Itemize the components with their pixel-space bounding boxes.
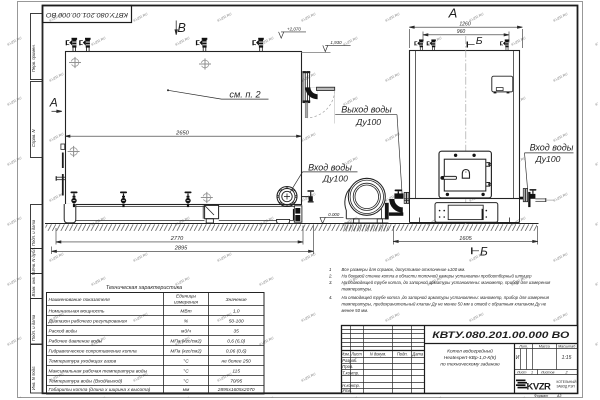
svg-text:не более 250: не более 250 [222, 358, 252, 364]
svg-text:Подп.: Подп. [397, 351, 408, 356]
svg-text:Ду100: Ду100 [535, 154, 561, 164]
svg-text:50-100: 50-100 [229, 318, 244, 324]
svg-text:Номинальная мощность: Номинальная мощность [49, 308, 106, 314]
svg-text:Масса: Масса [539, 344, 550, 348]
svg-text:Б: Б [480, 245, 488, 259]
svg-text:+2,070: +2,070 [287, 27, 301, 32]
svg-text:Перв. примен.: Перв. примен. [31, 44, 36, 72]
svg-text:Рабочее давление воды: Рабочее давление воды [49, 338, 103, 344]
svg-text:%: % [184, 318, 189, 324]
svg-text:Ду100: Ду100 [355, 117, 381, 127]
svg-text:Подп. и дата: Подп. и дата [31, 219, 36, 246]
svg-text:А3: А3 [556, 394, 561, 398]
svg-text:измерения: измерения [174, 301, 198, 306]
svg-text:Котел водогрейный: Котел водогрейный [447, 347, 493, 354]
svg-text:Изм.: Изм. [341, 351, 350, 356]
svg-text:мм: мм [183, 388, 190, 393]
svg-text:Разраб.: Разраб. [342, 358, 357, 363]
svg-text:Вход воды: Вход воды [530, 142, 574, 152]
svg-text:0.000: 0.000 [328, 212, 340, 217]
svg-text:Справ. N: Справ. N [31, 129, 36, 147]
svg-text:Значение: Значение [226, 297, 247, 303]
svg-text:1605: 1605 [459, 236, 472, 242]
svg-text:Листов: Листов [540, 371, 555, 375]
svg-text:Наименование показателя: Наименование показателя [49, 297, 111, 303]
svg-text:А: А [448, 6, 458, 21]
svg-text:Единицы: Единицы [176, 294, 197, 300]
svg-text:Техническая характеристика: Техническая характеристика [106, 285, 182, 291]
svg-text:Вход воды: Вход воды [308, 163, 352, 173]
svg-text:115: 115 [232, 368, 240, 374]
svg-text:2895: 2895 [174, 246, 188, 252]
svg-text:Ду100: Ду100 [322, 173, 348, 183]
svg-text:ЗАВОД РЭП: ЗАВОД РЭП [557, 385, 576, 389]
svg-text:2: 2 [565, 371, 568, 375]
svg-text:МВт: МВт [180, 308, 191, 314]
svg-text:КОТЕЛЬНЫЙ: КОТЕЛЬНЫЙ [557, 380, 578, 384]
svg-text:м3/ч: м3/ч [181, 328, 191, 334]
svg-text:Инв. N дубл.: Инв. N дубл. [31, 247, 36, 271]
svg-text:На боковой стенке котла в обла: На боковой стенке котла в области топочн… [342, 274, 533, 279]
svg-text:Лист: Лист [516, 371, 527, 375]
svg-text:°С: °С [183, 358, 189, 364]
svg-text:Лист: Лист [350, 351, 362, 356]
svg-text:Взам. инв. N: Взам. инв. N [31, 271, 36, 296]
svg-text:Все размеры для справок, допус: Все размеры для справок, допустимое откл… [342, 267, 466, 272]
svg-text:Габариты котла (длина х ширина: Габариты котла (длина х ширина х высота) [49, 387, 151, 393]
svg-text:Формат: Формат [534, 394, 548, 398]
svg-text:1,0: 1,0 [233, 308, 240, 314]
svg-text:Гидравлическое сопротивление к: Гидравлическое сопротивление котла [49, 348, 137, 354]
svg-text:На отводящей трубе котла ,до з: На отводящей трубе котла ,до запорной ар… [342, 295, 550, 300]
svg-text:И: И [516, 355, 520, 361]
svg-text:0,06 (0,6): 0,06 (0,6) [226, 348, 247, 354]
svg-text:1:15: 1:15 [562, 355, 572, 361]
svg-text:по техническому заданию: по техническому заданию [440, 361, 500, 367]
svg-text:Лит.: Лит. [518, 344, 528, 348]
svg-text:Максимальная рабочая температу: Максимальная рабочая температура воды [49, 368, 148, 374]
svg-text:N докум.: N докум. [370, 351, 387, 356]
svg-text:Т.контр.: Т.контр. [342, 370, 359, 375]
svg-text:Подп. и дата: Подп. и дата [31, 314, 36, 341]
svg-text:Утв.: Утв. [342, 388, 352, 393]
svg-text:Расход воды: Расход воды [49, 328, 78, 334]
svg-text:Диапазон рабочего регулировани: Диапазон рабочего регулирования [48, 318, 128, 324]
svg-text:2.: 2. [328, 274, 333, 279]
svg-text:0,6 (6,0): 0,6 (6,0) [227, 338, 245, 344]
svg-text:Б: Б [476, 35, 483, 47]
svg-text:35: 35 [234, 328, 240, 334]
svg-text:температуры, предохранительный: температуры, предохранительный клапан Ду… [342, 301, 547, 306]
svg-text:Инв. N подл.: Инв. N подл. [31, 366, 36, 390]
svg-text:На подводящей трубе котла, д: На подводящей трубе котла, до запорной а… [342, 280, 551, 285]
svg-text:Выход воды: Выход воды [341, 105, 392, 115]
svg-text:МПа (кгс/см2): МПа (кгс/см2) [170, 338, 202, 344]
svg-text:°С: °С [183, 378, 189, 384]
svg-text:В: В [178, 21, 186, 35]
svg-text:1260: 1260 [459, 22, 470, 28]
svg-text:Температура уходящих газов: Температура уходящих газов [49, 358, 117, 364]
svg-text:Масштаб: Масштаб [558, 344, 576, 348]
svg-text:2770: 2770 [170, 236, 184, 242]
svg-text:Heatexpert-КВр-1,0-К(К): Heatexpert-КВр-1,0-К(К) [444, 355, 497, 361]
svg-text:KVZR: KVZR [527, 381, 552, 392]
svg-text:70/95: 70/95 [230, 378, 242, 384]
svg-text:КВТУ.080.201.00.000 ВО: КВТУ.080.201.00.000 ВО [432, 330, 570, 341]
svg-text:МПа (кгс/см2): МПа (кгс/см2) [170, 348, 202, 354]
svg-text:А: А [49, 95, 58, 109]
svg-text:см. п. 2: см. п. 2 [229, 89, 260, 99]
svg-text:960: 960 [457, 29, 466, 35]
svg-text:КВТУ.080.201.00.000 ВО: КВТУ.080.201.00.000 ВО [46, 11, 128, 18]
svg-text:1: 1 [531, 371, 533, 375]
svg-text:3.: 3. [329, 280, 333, 285]
svg-text:2650: 2650 [175, 130, 189, 136]
svg-text:1,930: 1,930 [330, 40, 342, 45]
svg-text:Дата: Дата [411, 351, 424, 356]
svg-text:2895х1605х2070: 2895х1605х2070 [217, 387, 255, 393]
svg-text:°С: °С [183, 368, 189, 374]
svg-text:Температура воды (Вход/выход): Температура воды (Вход/выход) [49, 378, 123, 384]
svg-text:менее 50 мм.: менее 50 мм. [342, 308, 369, 313]
svg-text:Пров.: Пров. [342, 364, 353, 369]
svg-text:4.: 4. [329, 295, 333, 300]
svg-text:температуры.: температуры. [342, 287, 373, 292]
